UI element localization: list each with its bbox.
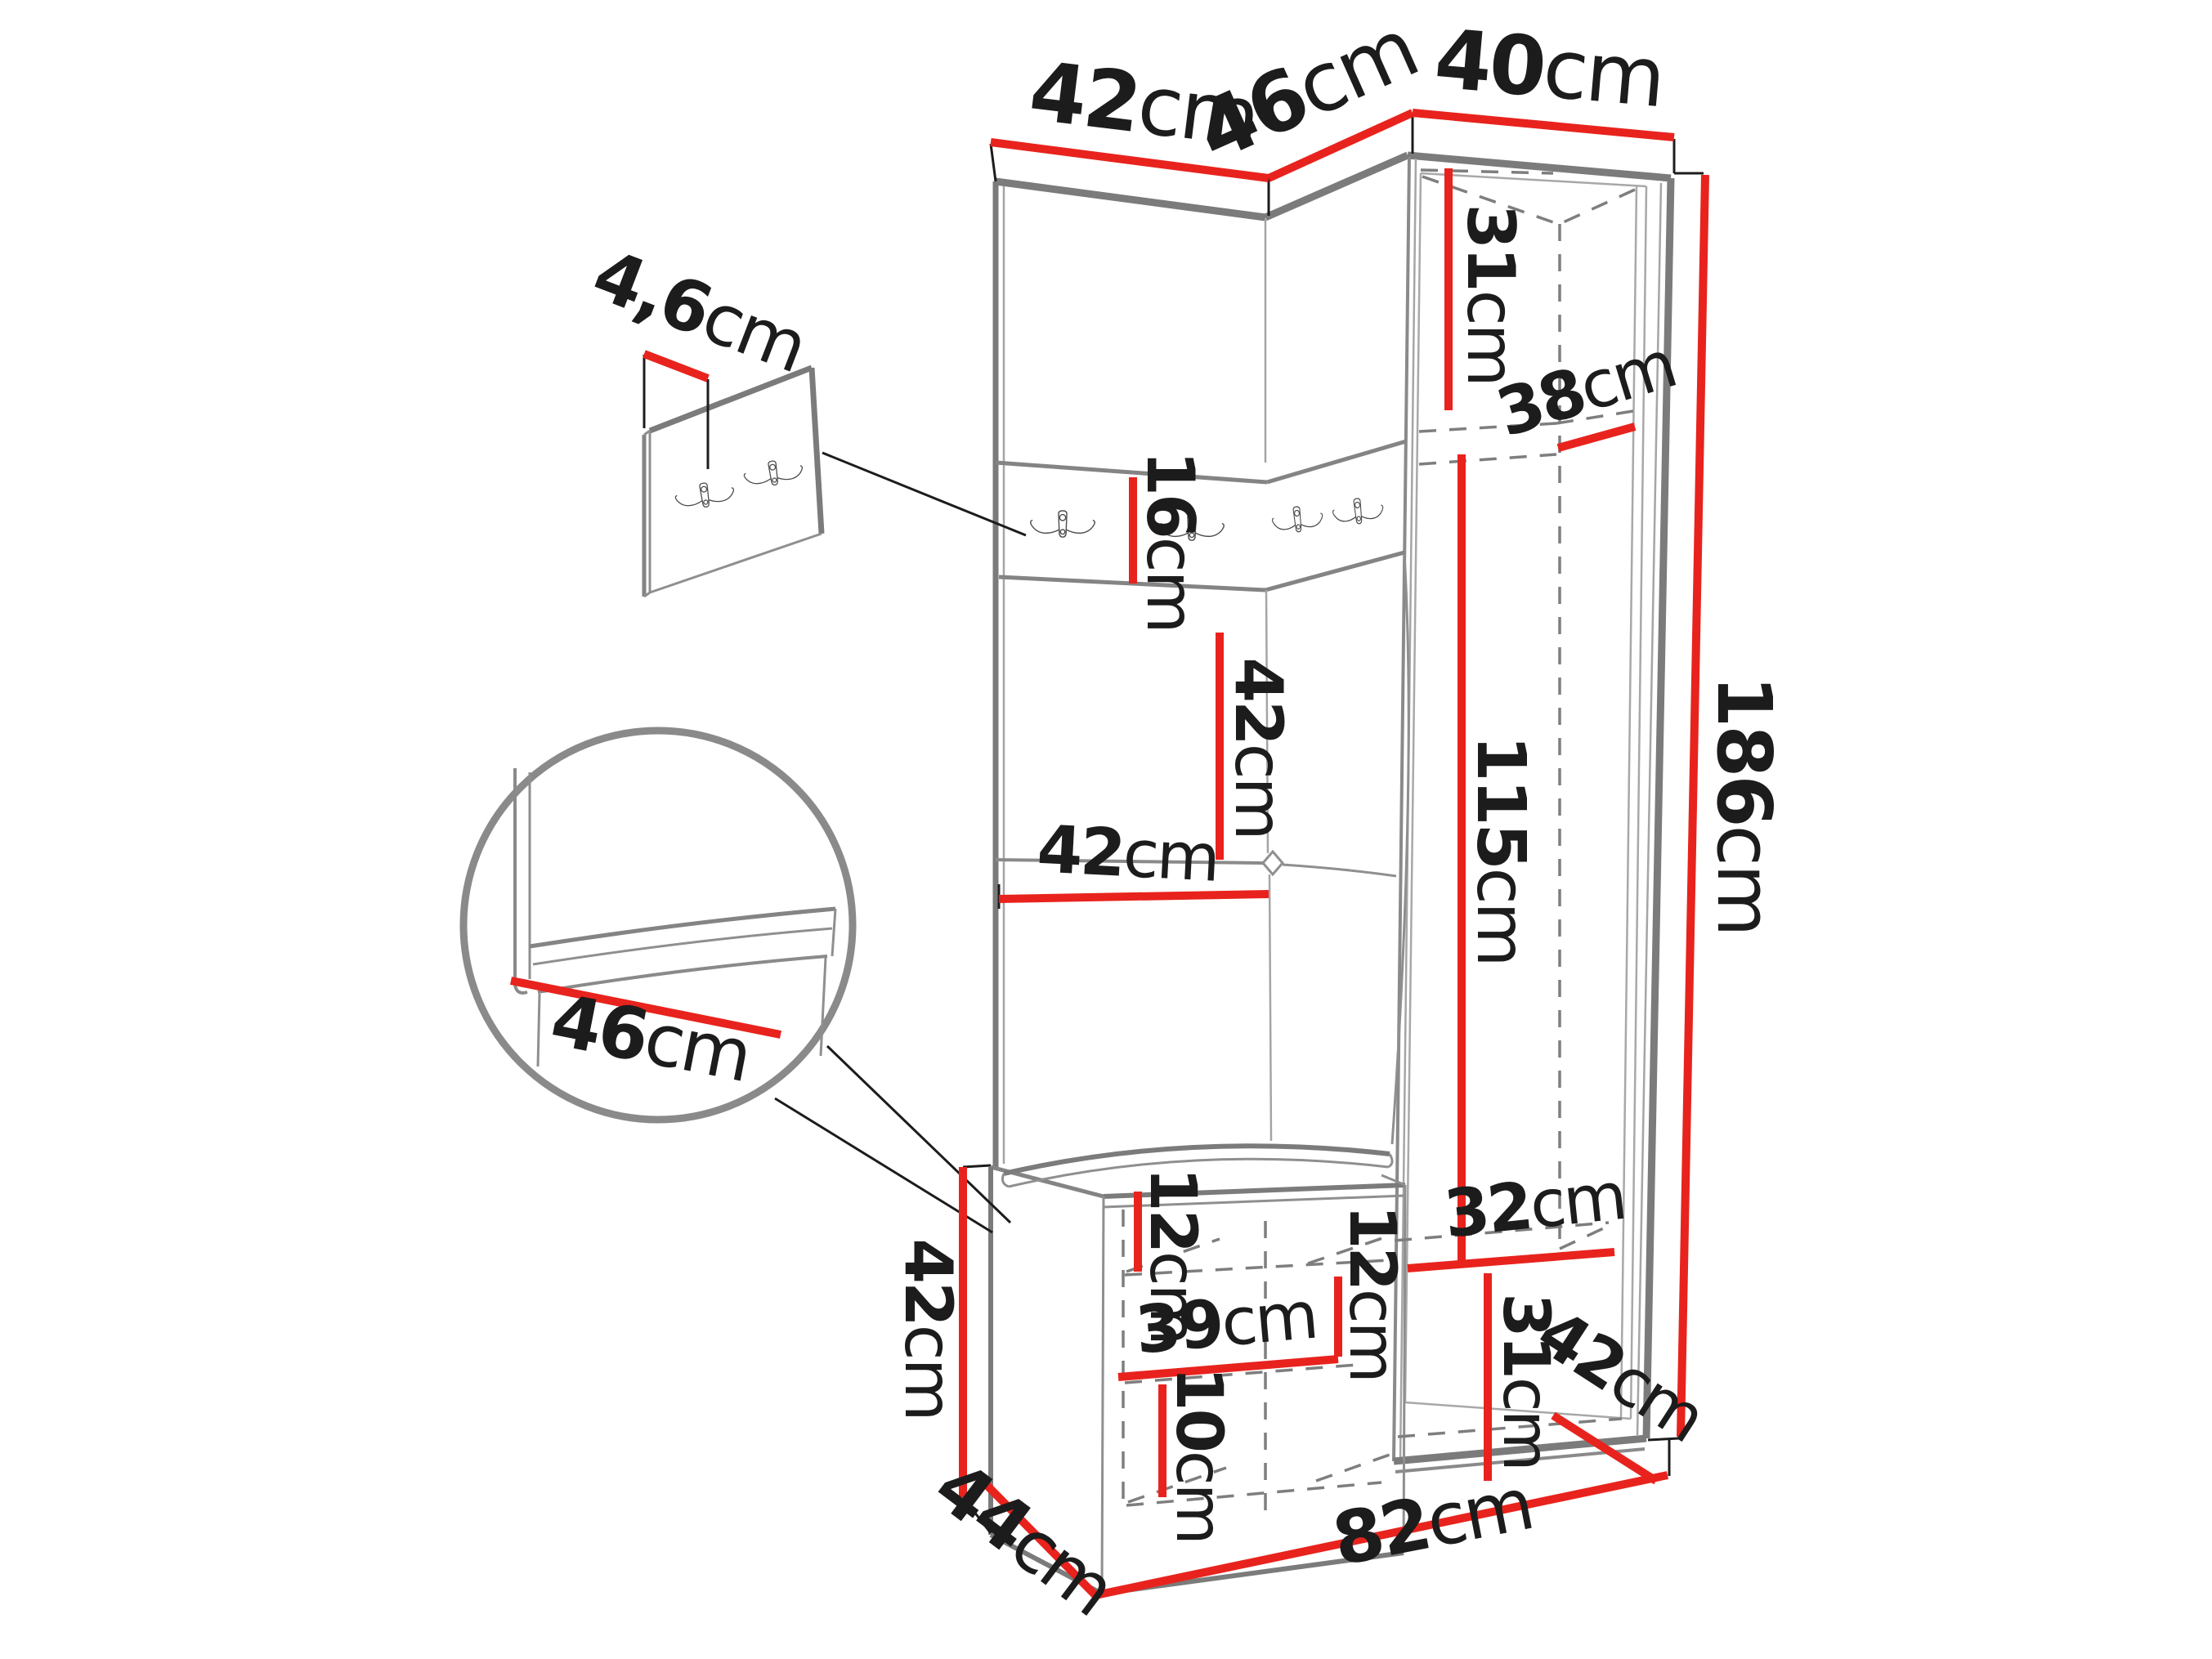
detail-bench-left — [538, 994, 540, 1066]
dim-label-total-height: 186cm — [1700, 675, 1788, 934]
dim-label-hook-rail-height: 16cm — [1132, 450, 1208, 631]
coat-hook-icon — [1031, 511, 1095, 537]
dim-label-top-width-right: 40cm — [1431, 11, 1668, 126]
dim-label-lower-shelf-width: 32cm — [1440, 1158, 1628, 1253]
dim-label-back-panel-height: 42cm — [1220, 657, 1296, 838]
dim-label-bench-lower-gap: 10cm — [1162, 1366, 1235, 1542]
coat-hook-icon — [1332, 496, 1384, 526]
furniture-dimension-diagram: 42cm 46cm 40cm 4,6cm 31cm 38cm 16cm 42cm… — [0, 0, 2212, 1659]
leader-line — [827, 1046, 1010, 1223]
dim-label-bench-height: 42cm — [890, 1238, 966, 1419]
diagram-canvas: 42cm 46cm 40cm 4,6cm 31cm 38cm 16cm 42cm… — [0, 0, 2212, 1659]
dim-label-bench-depth: 44cm — [920, 1444, 1130, 1631]
coat-hook-icon — [1271, 504, 1323, 534]
dash-line — [1419, 454, 1556, 464]
hook-rail-bottom-angled — [1265, 552, 1404, 590]
dim-label-upper-compartment-height: 31cm — [1453, 203, 1529, 384]
dim-line-back-panel-width — [999, 894, 1269, 899]
panel-bottom-edge — [650, 534, 822, 592]
dim-label-back-panel-width: 42cm — [1036, 811, 1220, 896]
hook-rail-top-angled — [1267, 441, 1406, 482]
extension-tick — [963, 1165, 991, 1167]
dim-label-top-width-middle: 46cm — [1182, 0, 1430, 181]
panel-bottom-edge-angled — [1283, 865, 1396, 876]
dim-label-base-width: 82cm — [1326, 1461, 1538, 1582]
dash-line — [1316, 1455, 1390, 1481]
dim-line-hook-panel-thickness — [644, 354, 708, 378]
panel-seam-diamond — [1263, 852, 1283, 874]
top-edge-angled — [1265, 155, 1408, 217]
dim-label-hook-panel-thickness: 4,6cm — [582, 234, 816, 389]
dim-label-mirror-door-height: 115cm — [1462, 735, 1539, 964]
dim-label-bench-shelf-width: 39cm — [1132, 1277, 1319, 1369]
hook-panel-detail — [644, 368, 822, 597]
dim-label-bench-middle-gap: 12cm — [1335, 1205, 1408, 1380]
panel-right-edge — [812, 368, 822, 534]
dash-line — [1560, 190, 1635, 224]
coat-hook-icon — [674, 479, 736, 511]
bench-front-left-edge — [1102, 1196, 1104, 1594]
coat-hook-icon — [743, 457, 804, 489]
dim-line-lower-shelf-width — [1408, 1252, 1614, 1268]
dash-line — [1421, 170, 1553, 173]
top-edge-front — [996, 181, 1265, 217]
valley-edge-lower — [1269, 874, 1271, 1141]
extension-tick — [991, 144, 996, 181]
